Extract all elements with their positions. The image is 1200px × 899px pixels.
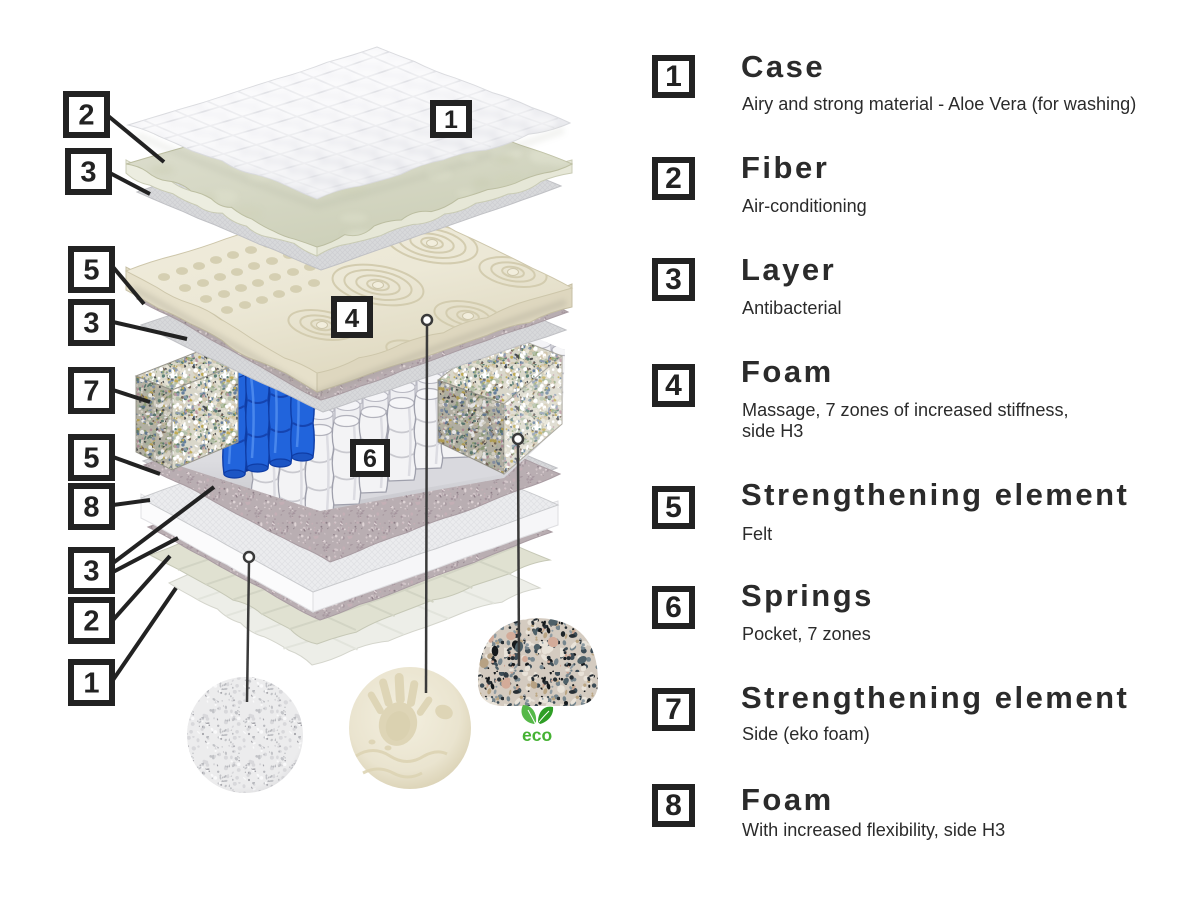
svg-text:3: 3 (80, 157, 96, 189)
svg-text:2: 2 (78, 100, 94, 132)
svg-text:1: 1 (83, 668, 99, 700)
svg-text:5: 5 (83, 255, 99, 287)
svg-text:5: 5 (83, 443, 99, 475)
svg-text:2: 2 (83, 606, 99, 638)
svg-text:4: 4 (345, 303, 360, 333)
svg-text:6: 6 (363, 445, 377, 473)
svg-text:8: 8 (83, 492, 99, 524)
svg-text:eco: eco (522, 725, 552, 745)
svg-text:7: 7 (83, 376, 99, 408)
svg-text:3: 3 (83, 308, 99, 340)
svg-text:3: 3 (83, 556, 99, 588)
svg-text:1: 1 (444, 106, 458, 134)
